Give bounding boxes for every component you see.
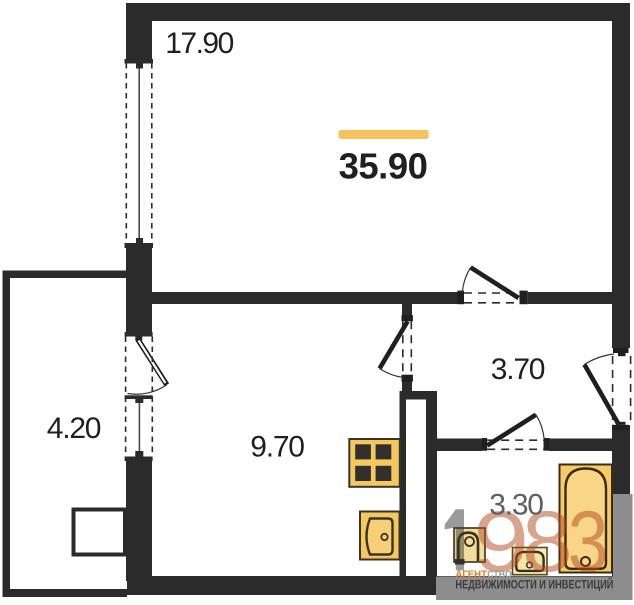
svg-text:3.30: 3.30: [489, 489, 543, 522]
svg-text:3.70: 3.70: [491, 353, 545, 386]
svg-text:35.90: 35.90: [339, 146, 428, 187]
svg-text:3: 3: [568, 493, 609, 589]
svg-text:НЕДВИЖИМОСТИ И ИНВЕСТИЦИЙ: НЕДВИЖИМОСТИ И ИНВЕСТИЦИЙ: [455, 578, 613, 591]
svg-text:17.90: 17.90: [165, 27, 233, 60]
svg-text:9.70: 9.70: [250, 431, 304, 464]
svg-text:4.20: 4.20: [47, 412, 101, 445]
